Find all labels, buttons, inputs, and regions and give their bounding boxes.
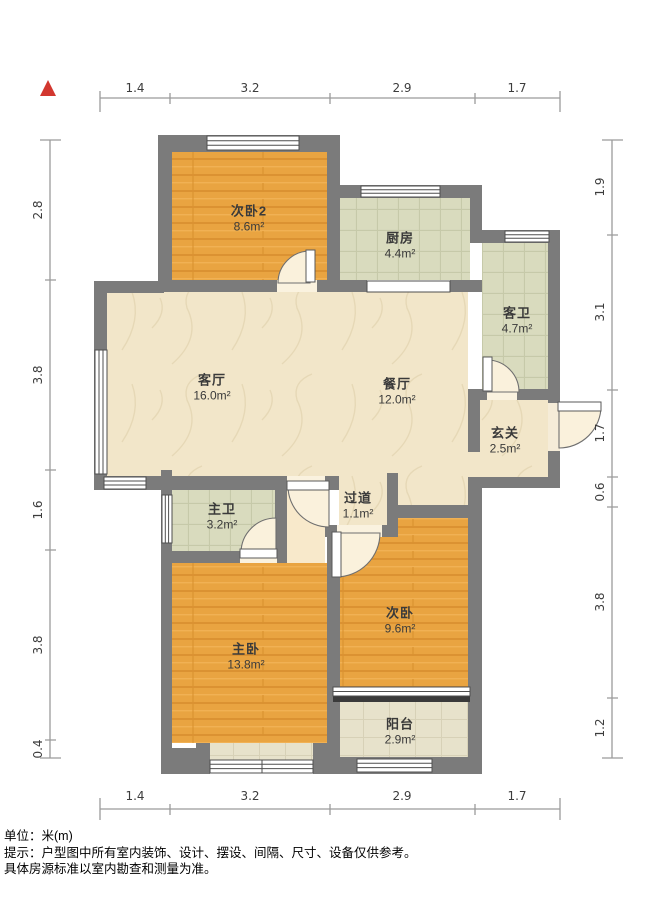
floorplan-page: 次卧2 8.6m² 厨房 4.4m² 客卫 4.7m² 客厅 16.0m² 餐厅… [0, 0, 662, 912]
balcony-window [357, 759, 432, 772]
dim-bottom-4: 1.7 [507, 789, 526, 803]
dim-bottom-2: 3.2 [240, 789, 259, 803]
master-bathroom-window [162, 495, 172, 543]
dim-bottom-1: 1.4 [125, 789, 144, 803]
dim-line-right [602, 140, 623, 758]
floor-hallway [339, 473, 387, 525]
dim-bottom-3: 2.9 [392, 789, 411, 803]
dim-right-3: 1.7 [593, 423, 607, 442]
bedroom2-window [207, 136, 299, 150]
dim-left-4: 3.8 [31, 635, 45, 654]
kitchen-window [361, 186, 440, 197]
dim-top-2: 3.2 [240, 81, 259, 95]
bedroom2-door-leaf [306, 250, 315, 282]
bedroom-door-leaf [332, 532, 341, 577]
floor-master-bedroom [172, 563, 327, 743]
footer-unit-line: 单位：米(m) [4, 828, 73, 844]
dim-left-3: 1.6 [31, 500, 45, 519]
floor-entryway [480, 400, 548, 477]
kitchen-passage [367, 281, 450, 292]
dim-top-4: 1.7 [507, 81, 526, 95]
dim-right-1: 1.9 [593, 177, 607, 196]
floor-dining-nook [398, 476, 470, 506]
floor-balcony [340, 702, 470, 757]
dim-line-left [40, 140, 61, 758]
dim-right-2: 3.1 [593, 302, 607, 321]
dim-line-bottom [100, 798, 560, 820]
dim-left-2: 3.8 [31, 365, 45, 384]
dim-right-6: 1.2 [593, 718, 607, 737]
dim-top-1: 1.4 [125, 81, 144, 95]
floor-bay-window [210, 743, 313, 762]
step-window [104, 477, 146, 489]
balcony-sliding-door [333, 687, 470, 696]
balcony-door-track [333, 696, 470, 702]
dim-left-5: 0.4 [31, 739, 45, 758]
guest-bathroom-door-leaf [483, 357, 492, 391]
footer-tip-line-1: 提示：户型图中所有室内装饰、设计、摆设、间隔、尺寸、设备仅供参考。 [4, 845, 417, 861]
dim-left-1: 2.8 [31, 200, 45, 219]
master-bathroom-door-leaf [240, 549, 277, 558]
floor-kitchen [340, 198, 470, 280]
floorplan-drawing [0, 0, 662, 830]
floor-entry-passage [468, 452, 480, 477]
dim-right-4: 0.6 [593, 482, 607, 501]
living-room-window [95, 350, 107, 474]
dim-line-top [100, 91, 560, 112]
entry-door-leaf [558, 402, 601, 411]
master-bedroom-door-leaf [287, 481, 329, 490]
guest-bathroom-window [505, 231, 549, 242]
dim-right-5: 3.8 [593, 592, 607, 611]
footer-tip-line-2: 具体房源标准以室内勘查和测量为准。 [4, 861, 217, 877]
north-indicator-icon [40, 80, 56, 96]
master-bay-window [210, 760, 313, 773]
floor-living-dining [107, 292, 468, 476]
dim-top-3: 2.9 [392, 81, 411, 95]
